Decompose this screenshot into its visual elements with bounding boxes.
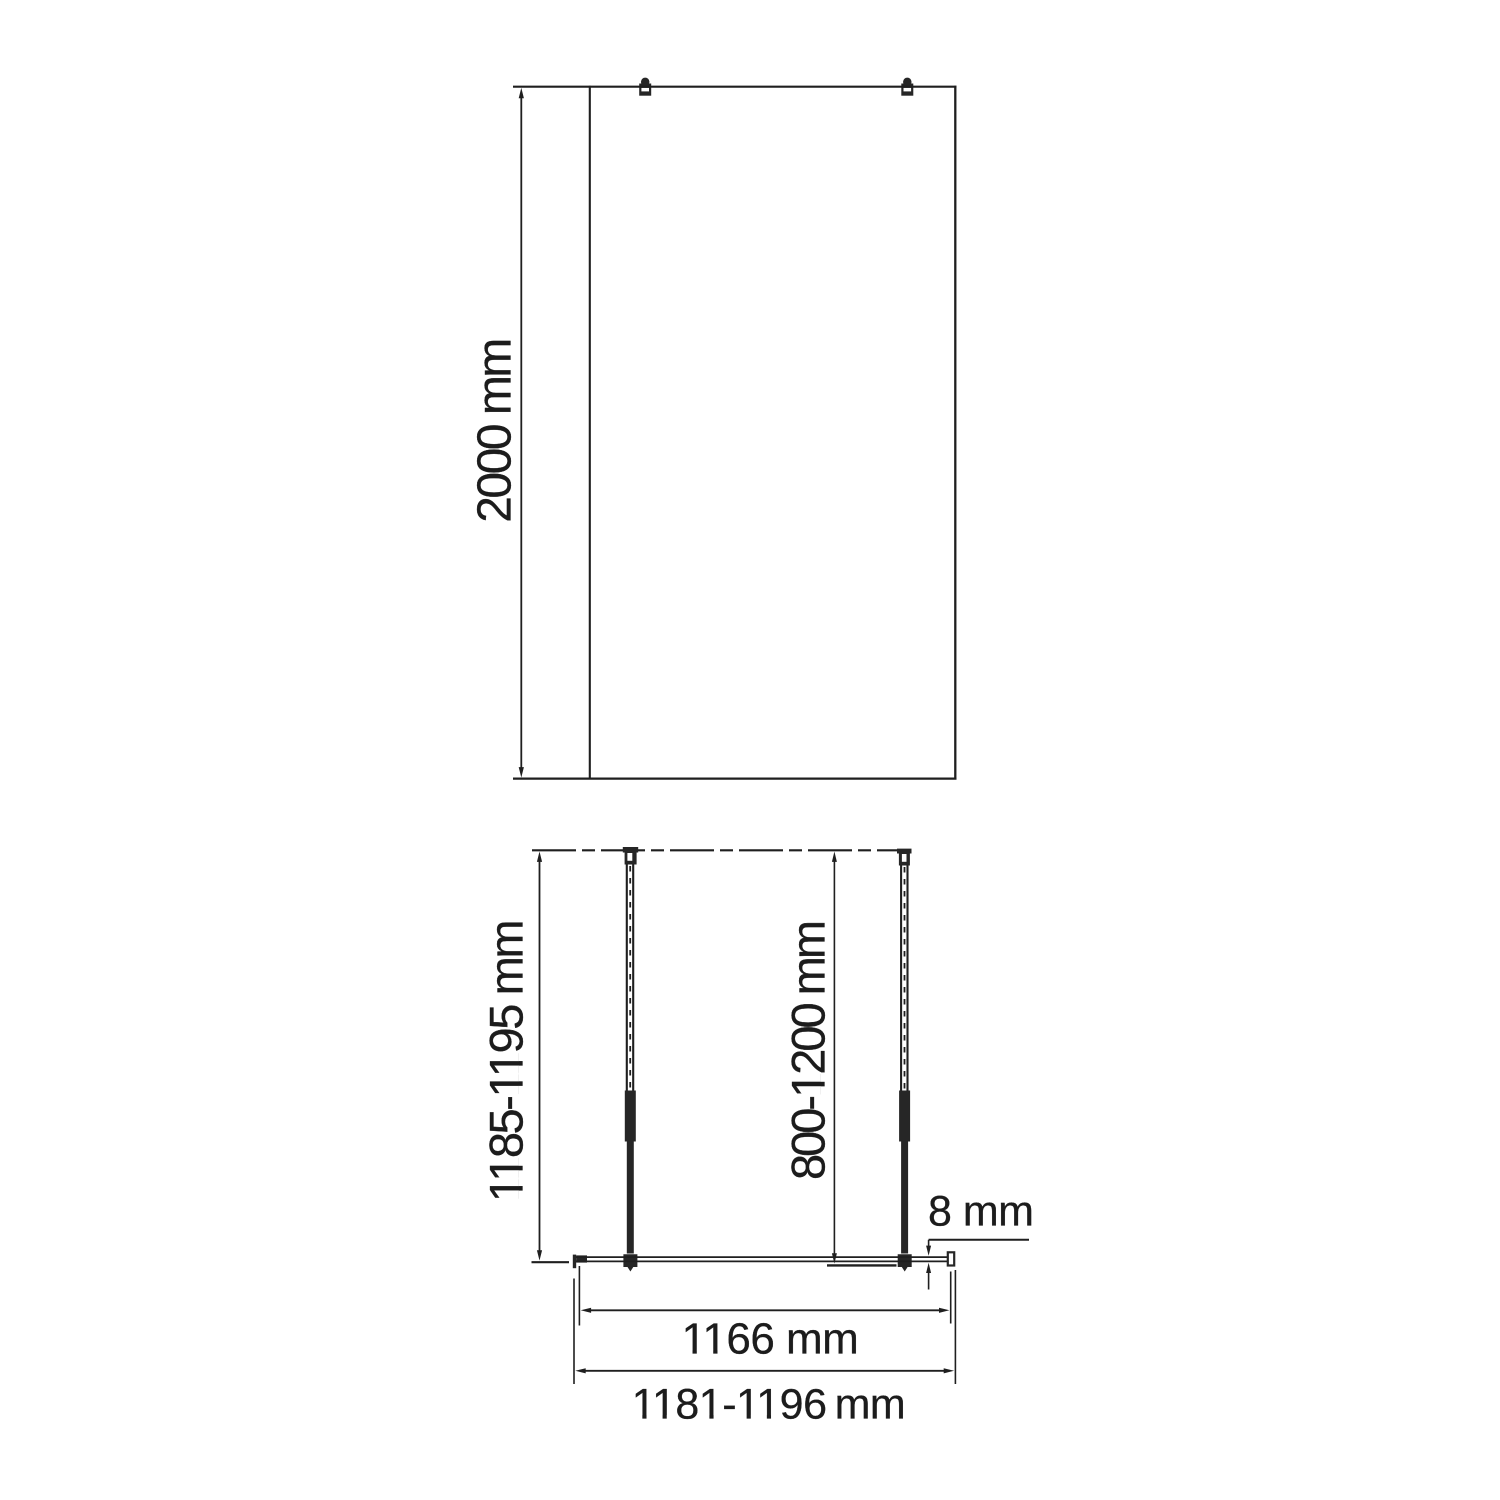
svg-text:2000 mm: 2000 mm [469,340,522,523]
svg-text:1185-1195 mm: 1185-1195 mm [480,922,533,1203]
svg-text:800-1200 mm: 800-1200 mm [782,922,835,1180]
svg-text:1181-1196 mm: 1181-1196 mm [632,1381,906,1429]
svg-text:1166 mm: 1166 mm [682,1315,859,1364]
svg-text:8 mm: 8 mm [928,1188,1034,1236]
